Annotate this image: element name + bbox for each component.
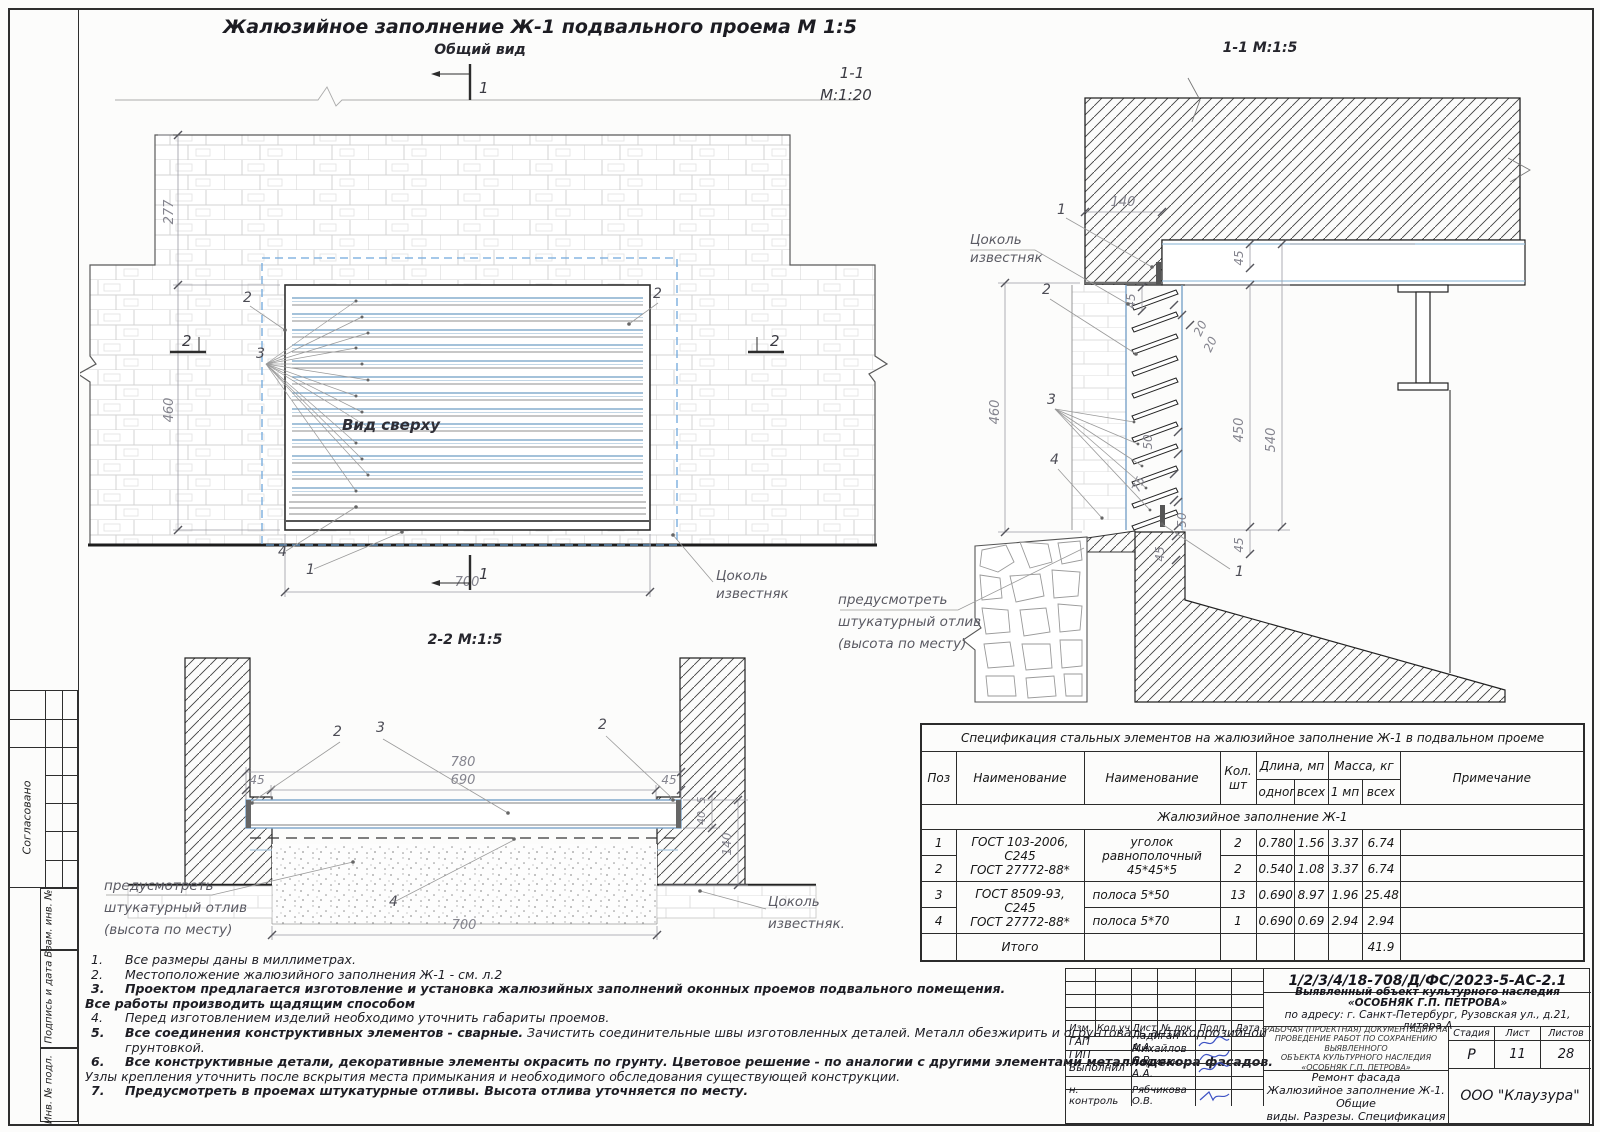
stamp-sheet-no: 11 — [1495, 1041, 1541, 1069]
side-label-inv: Инв. № подл. — [44, 1050, 55, 1130]
svg-text:1: 1 — [479, 565, 489, 583]
note-line: Узлы крепления уточнить после вскрытия м… — [85, 1070, 990, 1085]
note-num: 5. — [85, 1026, 125, 1041]
spec-group-header: Жалюзийное заполнение Ж-1 — [921, 805, 1584, 830]
drawing-sheet: Согласовано Взам. инв. № Подпись и дата … — [0, 0, 1600, 1132]
spec-cell: 2 — [1220, 856, 1256, 882]
spec-cell — [1400, 856, 1584, 882]
note-line: 4.Перед изготовлением изделий необходимо… — [85, 1011, 990, 1026]
callout-2r-s22: 2 — [598, 717, 607, 733]
callout-2-left: 2 — [243, 290, 252, 306]
side-box-vzam: Взам. инв. № — [40, 888, 78, 950]
spec-h-vseh2: всех — [1362, 780, 1400, 805]
spec-h-kol: Кол. шт — [1220, 752, 1256, 805]
spec-gost-34: ГОСТ 8509-93, С245 ГОСТ 27772-88* — [956, 882, 1084, 934]
stamp-right: 1/2/3/4/18-708/Д/ФС/2023-5-АС-2.1 Выявле… — [1264, 969, 1591, 1123]
callout-1: 1 — [306, 562, 315, 578]
spec-cell: 25.48 — [1362, 882, 1400, 908]
spec-cell: 0.540 — [1256, 856, 1294, 882]
drip-note-s11-2: штукатурный отлив — [838, 614, 981, 630]
spec-total-value: 41.9 — [1362, 934, 1400, 962]
spec-cell — [1400, 830, 1584, 856]
spec-cell — [1220, 934, 1256, 962]
plinth-label-s11-1: Цоколь — [970, 232, 1022, 248]
spec-cell: 2.94 — [1328, 908, 1362, 934]
stamp-sheetname: Ремонт фасада Жалюзийное заполнение Ж-1.… — [1264, 1071, 1449, 1123]
section-1-1-drawing: 460 140 45 45 20 20 50 450 540 75 50 45 … — [830, 40, 1592, 720]
note-text: Узлы крепления уточнить после вскрытия м… — [85, 1070, 900, 1085]
dim-460-s11: 460 — [988, 400, 1003, 425]
dim-45-b2: 45 — [1232, 537, 1246, 552]
plaster-drip — [1087, 531, 1135, 552]
note-text: Предусмотреть в проемах штукатурные отли… — [125, 1084, 748, 1099]
spec-cell — [1256, 934, 1294, 962]
dim-45-b1: 45 — [1153, 546, 1167, 561]
stamp-sheetname-3: виды. Разрезы. Спецификация — [1267, 1110, 1446, 1123]
stamp-sheetname-1: Ремонт фасада — [1312, 1071, 1401, 1084]
dim-140-s22: 140 — [720, 832, 734, 855]
dim-40: 40 — [695, 811, 708, 825]
callout-2-s11: 2 — [1042, 282, 1051, 298]
note-line: 1.Все размеры даны в миллиметрах. — [85, 953, 990, 968]
callout-1-bot-s11: 1 — [1235, 564, 1244, 580]
spec-cell: 1.08 — [1294, 856, 1328, 882]
louvre-opening-frame — [285, 285, 650, 530]
note-text: Все работы производить щадящим способом — [85, 997, 415, 1012]
stamp-signature-4 — [1196, 1086, 1232, 1106]
spec-cell: 0.690 — [1256, 908, 1294, 934]
spec-cell: 3 — [921, 882, 956, 908]
dim-45-right: 45 — [661, 773, 676, 787]
slab-band — [1162, 240, 1525, 285]
stamp-h-sheets: Листов — [1541, 1027, 1591, 1041]
plinth-label-1: Цоколь — [716, 568, 768, 584]
spec-cell: 0.780 — [1256, 830, 1294, 856]
spec-cell — [1294, 934, 1328, 962]
svg-text:2: 2 — [182, 332, 192, 350]
callout-3: 3 — [256, 346, 265, 362]
side-box-approved: Согласовано — [8, 690, 78, 888]
note-line: 5.Все соединения конструктивных элементо… — [85, 1026, 990, 1041]
spec-h-naim2: Наименование — [1084, 752, 1220, 805]
stamp-h-sheet: Лист — [1495, 1027, 1541, 1041]
dim-45-top: 45 — [1124, 293, 1138, 308]
spec-cell: 2 — [921, 856, 956, 882]
plinth-label-s22-2: известняк. — [768, 916, 845, 932]
dim-5: 5 — [695, 797, 708, 804]
callout-4-s11: 4 — [1050, 452, 1059, 468]
dim-540: 540 — [1264, 428, 1279, 453]
spec-naim-4: полоса 5*70 — [1084, 908, 1220, 934]
side-label-approved: Согласовано — [21, 778, 34, 858]
spec-h-poz: Поз — [921, 752, 956, 805]
louvre-plan-frame — [246, 800, 681, 828]
spec-cell: 1.96 — [1328, 882, 1362, 908]
spec-cell — [1084, 934, 1220, 962]
note-num: 1. — [85, 953, 125, 968]
callout-1-top-s11: 1 — [1057, 202, 1066, 218]
note-num: 2. — [85, 968, 125, 983]
spec-cell — [1400, 908, 1584, 934]
rubble-foundation — [963, 537, 1087, 702]
spec-cell: 1 — [1220, 908, 1256, 934]
callout-3-s11: 3 — [1047, 392, 1056, 408]
stamp-revision-grid: Изм. Кол.уч Лист № док Подп. Дата ГАП Ла… — [1066, 969, 1264, 1123]
sheet-title: Жалюзийное заполнение Ж-1 подвального пр… — [190, 16, 890, 38]
spec-cell: 0.690 — [1256, 882, 1294, 908]
dim-277: 277 — [162, 199, 177, 225]
plinth-label-2: известняк — [716, 586, 789, 602]
note-text: Все размеры даны в миллиметрах. — [125, 953, 356, 968]
dim-450: 450 — [1232, 418, 1247, 443]
notes-block: 1.Все размеры даны в миллиметрах. 2.Мест… — [85, 953, 990, 1099]
spec-cell: 1 — [921, 830, 956, 856]
note-text-bold: Все соединения конструктивных элементов … — [125, 1025, 523, 1040]
gost-34a: ГОСТ 8509-93, С245 — [975, 887, 1065, 915]
note-text: Проектом предлагается изготовление и уст… — [125, 982, 1005, 997]
dim-780: 780 — [451, 755, 476, 770]
callout-4: 4 — [278, 544, 287, 560]
spec-cell: 13 — [1220, 882, 1256, 908]
spec-cell: 3.37 — [1328, 856, 1362, 882]
i-beam — [1398, 285, 1448, 390]
stamp-object: Выявленный объект культурного наследия «… — [1264, 993, 1591, 1027]
stamp-company: ООО "Клаузура" — [1449, 1069, 1591, 1123]
drip-note-s22-1: предусмотреть — [104, 878, 213, 894]
dim-460: 460 — [162, 398, 177, 423]
note-line: грунтовкой. — [85, 1041, 990, 1056]
note-num: 4. — [85, 1011, 125, 1026]
spec-cell: 6.74 — [1362, 830, 1400, 856]
svg-text:1: 1 — [479, 79, 489, 97]
dim-45-slab: 45 — [1232, 250, 1246, 265]
spec-title: Спецификация стальных элементов на жалюз… — [921, 724, 1584, 752]
dim-700-s22: 700 — [452, 918, 477, 933]
note-text: Местоположение жалюзийного заполнения Ж-… — [125, 968, 502, 983]
general-view-drawing: 277 460 700 1 1 2 2 1-1 М:1:20 — [80, 40, 900, 640]
note-num: 7. — [85, 1084, 125, 1099]
spec-naim-12: уголок равнополочный 45*45*5 — [1084, 830, 1220, 882]
spec-gost-12: ГОСТ 103-2006, С245 ГОСТ 27772-88* — [956, 830, 1084, 882]
drip-note-s22-3: (высота по месту) — [104, 922, 232, 938]
stamp-h-stage: Стадия — [1449, 1027, 1495, 1041]
stamp-workdoc-3: ОБЪЕКТА КУЛЬТУРНОГО НАСЛЕДИЯ — [1281, 1053, 1431, 1063]
stamp-workdoc-1: РАБОЧАЯ (ПРОЕКТНАЯ) ДОКУМЕНТАЦИЯ НА — [1265, 1025, 1448, 1035]
stamp-stage: Р — [1449, 1041, 1495, 1069]
angle-top — [1156, 262, 1161, 285]
top-view-label: Вид сверху — [342, 416, 441, 434]
note-text: Перед изготовлением изделий необходимо у… — [125, 1011, 609, 1026]
note-line: Все работы производить щадящим способом — [85, 997, 990, 1012]
frame-left-inner-line — [78, 8, 79, 1124]
svg-text:2: 2 — [770, 332, 780, 350]
spec-cell: 0.69 — [1294, 908, 1328, 934]
spec-cell: 3.37 — [1328, 830, 1362, 856]
spec-cell: 1.56 — [1294, 830, 1328, 856]
dim-140: 140 — [1111, 195, 1136, 210]
spec-cell: 6.74 — [1362, 856, 1400, 882]
callout-2l-s22: 2 — [333, 724, 342, 740]
spec-h-dlina: Длина, мп — [1256, 752, 1328, 780]
spec-cell: 4 — [921, 908, 956, 934]
callout-2-right: 2 — [653, 286, 662, 302]
stamp-sheetname-2: Жалюзийное заполнение Ж-1. Общие — [1264, 1084, 1448, 1110]
spec-h-1mp: 1 мп — [1328, 780, 1362, 805]
note-line: 2.Местоположение жалюзийного заполнения … — [85, 968, 990, 983]
spec-naim-3: полоса 5*50 — [1084, 882, 1220, 908]
dim-50-bot: 50 — [1175, 512, 1189, 528]
stamp-name-control: Рябчикова О.В. — [1132, 1086, 1196, 1106]
spec-cell — [1328, 934, 1362, 962]
stamp-object-2: «ОСОБНЯК Г.П. ПЕТРОВА» — [1348, 998, 1507, 1010]
spec-h-massa: Масса, кг — [1328, 752, 1400, 780]
stamp-sheets-total: 28 — [1541, 1041, 1591, 1069]
title-block: Изм. Кол.уч Лист № док Подп. Дата ГАП Ла… — [1065, 968, 1590, 1124]
dim-50-mid: 50 — [1141, 434, 1155, 450]
note-num: 3. — [85, 982, 125, 997]
note-text: грунтовкой. — [85, 1041, 205, 1056]
side-box-podpis: Подпись и дата — [40, 950, 78, 1048]
callout-4-s22: 4 — [389, 894, 398, 910]
concrete-fill-plan — [272, 844, 657, 924]
spec-cell: 2.94 — [1362, 908, 1400, 934]
section-2-2-drawing: 780 690 45 45 700 5 40 140 2 3 2 4 преду… — [100, 632, 880, 967]
spec-h-prim: Примечание — [1400, 752, 1584, 805]
dim-690: 690 — [451, 773, 476, 788]
note-line: 7.Предусмотреть в проемах штукатурные от… — [85, 1084, 990, 1099]
plinth-label-s11-2: известняк — [970, 250, 1043, 266]
section-mark-1-top: 1 — [431, 64, 489, 100]
gost-34b: ГОСТ 27772-88* — [970, 915, 1069, 929]
drip-note-s11-1: предусмотреть — [838, 592, 947, 608]
note-line: 6.Все конструктивные детали, декоративны… — [85, 1055, 990, 1070]
callout-3-s22: 3 — [376, 720, 385, 736]
spec-table: Спецификация стальных элементов на жалюз… — [920, 723, 1585, 962]
note-num: 6. — [85, 1055, 125, 1070]
jamb-left — [185, 658, 272, 885]
spec-h-odnogo: одного — [1256, 780, 1294, 805]
spec-cell: 2 — [1220, 830, 1256, 856]
drip-note-s22-2: штукатурный отлив — [104, 900, 247, 916]
side-box-inv: Инв. № подл. — [40, 1048, 78, 1122]
stamp-role-control: н. контроль — [1066, 1086, 1132, 1106]
dim-45-left: 45 — [249, 773, 264, 787]
stamp-workdoc-2: ПРОВЕДЕНИЕ РАБОТ ПО СОХРАНЕНИЮ ВЫЯВЛЕННО… — [1264, 1034, 1448, 1053]
note-line: 3.Проектом предлагается изготовление и у… — [85, 982, 990, 997]
spec-cell — [1400, 882, 1584, 908]
spec-h-vseh1: всех — [1294, 780, 1328, 805]
gost-12a: ГОСТ 103-2006, С245 — [971, 835, 1068, 863]
stamp-workdoc: РАБОЧАЯ (ПРОЕКТНАЯ) ДОКУМЕНТАЦИЯ НА ПРОВ… — [1264, 1027, 1449, 1071]
spec-cell: 8.97 — [1294, 882, 1328, 908]
plinth-label-s22-1: Цоколь — [768, 894, 820, 910]
spec-cell — [1400, 934, 1584, 962]
spec-h-naim1: Наименование — [956, 752, 1084, 805]
side-label-podpis: Подпись и дата — [44, 964, 55, 1044]
gost-12b: ГОСТ 27772-88* — [970, 863, 1069, 877]
